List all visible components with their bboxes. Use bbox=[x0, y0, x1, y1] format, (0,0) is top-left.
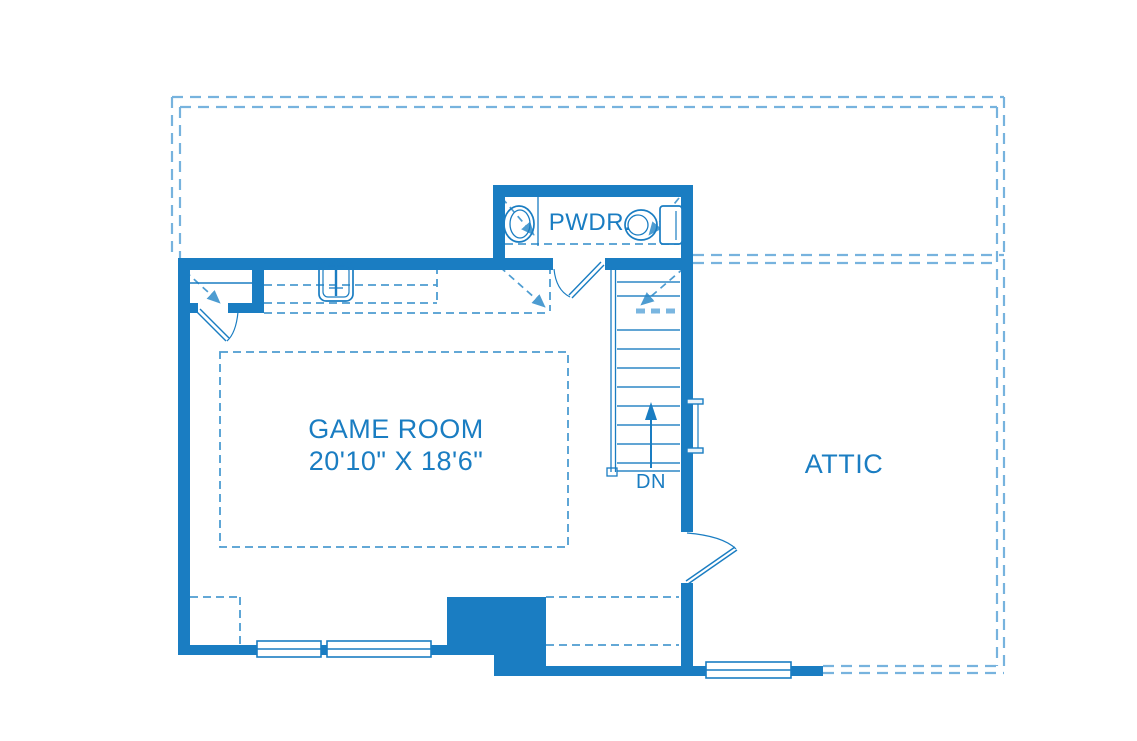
wall-closet-stub-right bbox=[228, 303, 264, 313]
powder-door-swing-arc bbox=[554, 269, 570, 297]
stair-direction-label: DN bbox=[636, 471, 666, 493]
closet-door bbox=[197, 309, 238, 341]
attic-door-swing-arc bbox=[687, 533, 736, 549]
sink-icon bbox=[504, 206, 534, 242]
chimney-block-tab bbox=[494, 648, 546, 676]
powder-door bbox=[554, 262, 604, 298]
closet-door-swing-arc bbox=[227, 312, 238, 341]
window bbox=[706, 662, 791, 678]
game-room-label: GAME ROOM bbox=[308, 414, 484, 444]
walls bbox=[178, 185, 823, 676]
wall-left bbox=[178, 258, 190, 655]
labels: GAME ROOM 20'10" X 18'6" PWDR. ATTIC bbox=[308, 209, 883, 479]
chimney-block bbox=[447, 597, 546, 655]
wall-top-right bbox=[605, 258, 693, 270]
powder-room-label: PWDR. bbox=[549, 209, 632, 236]
window bbox=[327, 641, 431, 657]
wall-powder-top bbox=[493, 185, 693, 197]
floor-plan: DN bbox=[0, 0, 1137, 741]
game-room-dimensions: 20'10" X 18'6" bbox=[309, 446, 484, 476]
attic-label: ATTIC bbox=[805, 449, 884, 479]
attic-door bbox=[686, 533, 737, 584]
wall-right-lower bbox=[681, 583, 693, 676]
attic-boundary-dashed bbox=[172, 97, 1004, 673]
wall-closet-stub-left bbox=[178, 303, 198, 313]
window bbox=[257, 641, 321, 657]
stair-rail bbox=[607, 268, 617, 476]
toilet-icon bbox=[625, 206, 682, 244]
wall-powder-left bbox=[493, 185, 505, 270]
stair-direction-arrow-icon bbox=[645, 402, 657, 468]
floor-plan-drawing: DN bbox=[0, 0, 1137, 741]
